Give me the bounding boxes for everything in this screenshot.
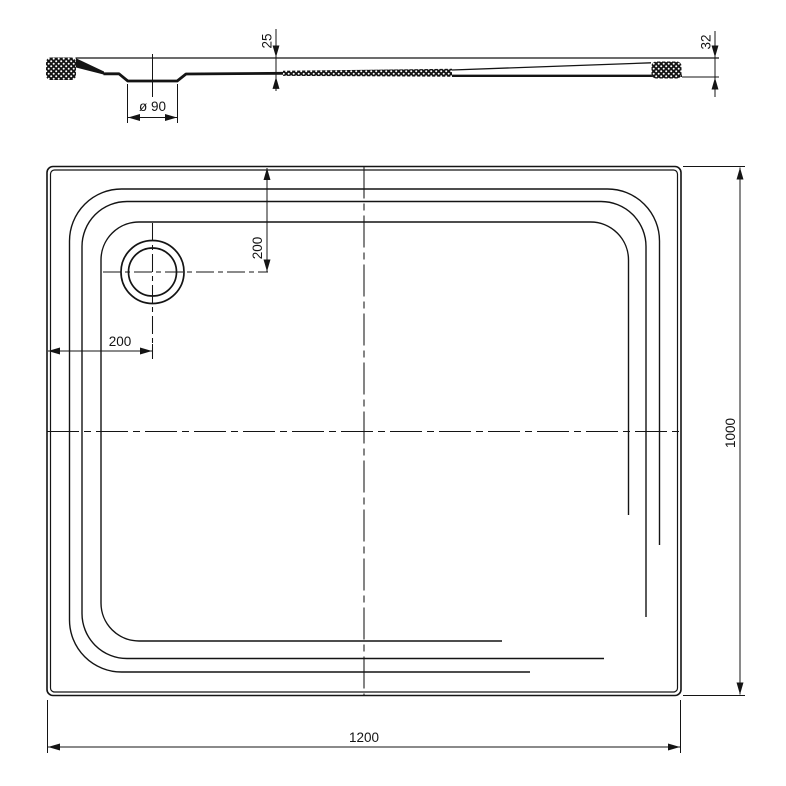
dimension-25: 25 [260, 29, 277, 91]
drawing-sheet: 25 32 ø 90 [0, 0, 786, 786]
dim-label-drain-diameter: ø 90 [139, 99, 166, 114]
dimension-200-horizontal: 200 [48, 334, 153, 359]
dim-label-1000: 1000 [723, 418, 738, 448]
dimension-32: 32 [699, 31, 716, 97]
dim-label-1200: 1200 [349, 730, 379, 745]
gasket-left [46, 58, 76, 81]
technical-drawing: 25 32 ø 90 [0, 0, 786, 786]
tray-bottom-left-band [104, 73, 284, 81]
dim-label-25: 25 [260, 33, 275, 48]
tray-floor-slope-line [452, 63, 651, 70]
plan-view: 200 200 1200 1000 [47, 167, 745, 754]
dimension-1200: 1200 [48, 700, 681, 753]
tray-bottom-hatched-band [283, 69, 452, 77]
gasket-right [652, 62, 682, 79]
dimension-1000: 1000 [683, 167, 745, 696]
dim-label-200-horizontal: 200 [109, 334, 132, 349]
dim-label-32: 32 [699, 34, 714, 49]
section-view: 25 32 ø 90 [46, 29, 719, 123]
rim-wedge-left [76, 58, 104, 74]
dim-label-200-vertical: 200 [250, 237, 265, 260]
dimension-200-vertical: 200 [250, 168, 267, 272]
